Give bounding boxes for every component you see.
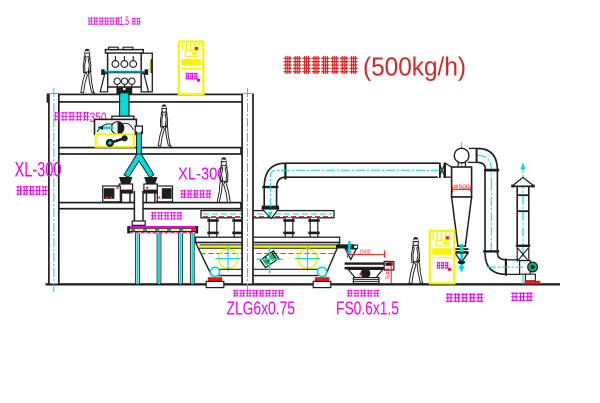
svg-text:ZLG6x0.75: ZLG6x0.75 xyxy=(227,298,296,319)
svg-text:XL-300: XL-300 xyxy=(15,159,62,182)
svg-text:540: 540 xyxy=(386,268,392,279)
svg-text:Φ500: Φ500 xyxy=(454,184,470,190)
svg-text:(500kg/h): (500kg/h) xyxy=(363,54,466,82)
svg-text:1.5: 1.5 xyxy=(120,14,130,28)
svg-text:FS0.6x1.5: FS0.6x1.5 xyxy=(336,298,399,319)
svg-text:1500: 1500 xyxy=(360,249,371,255)
svg-text:XL-300: XL-300 xyxy=(178,164,226,184)
